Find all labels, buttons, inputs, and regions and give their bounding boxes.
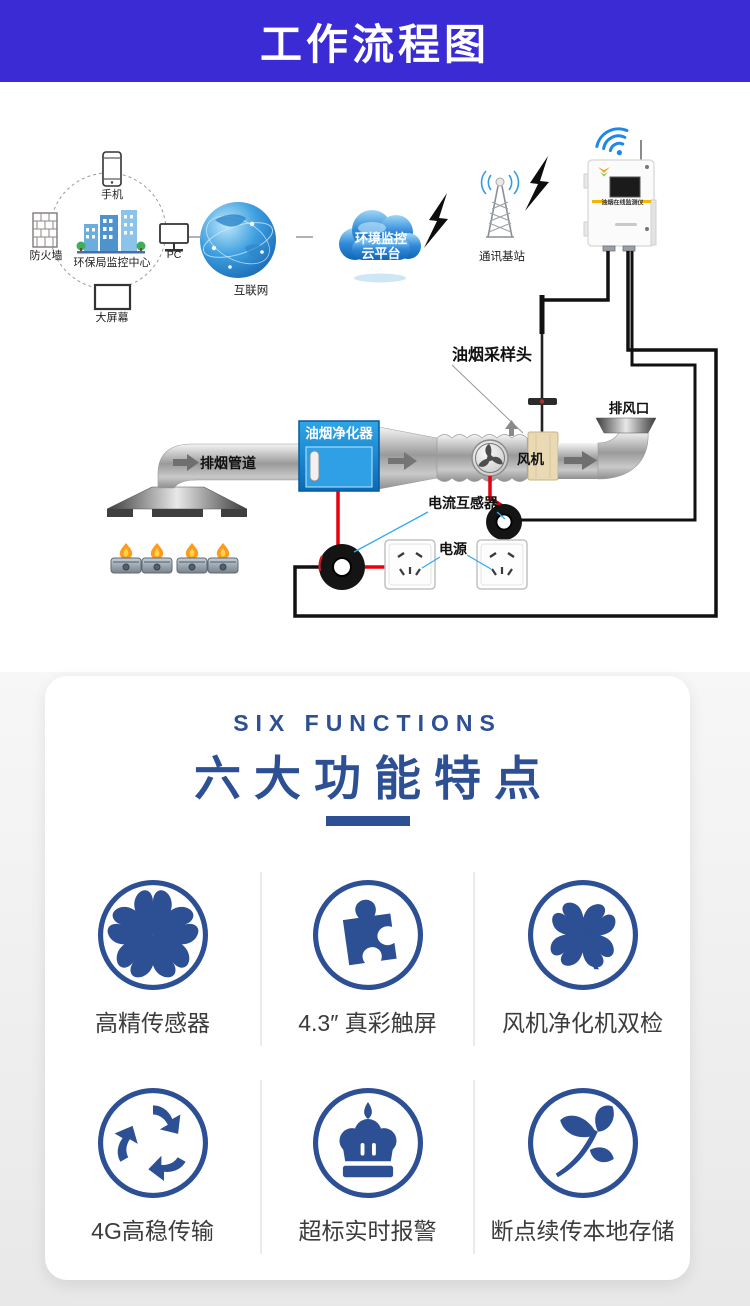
lightning-icon <box>424 193 448 248</box>
device-name-label: 油烟在线监测仪 <box>601 199 644 207</box>
flower-icon <box>96 878 210 992</box>
puzzle-icon <box>311 878 425 992</box>
feature-label: 4.3″ 真彩触屏 <box>298 1004 437 1038</box>
feature-label: 风机净化机双检 <box>502 1004 663 1038</box>
crown-icon <box>311 1086 425 1200</box>
phone-icon <box>103 152 121 186</box>
current-transformer-label: 电流互感器 <box>428 495 499 511</box>
feature-item-touchscreen: 4.3″ 真彩触屏 <box>260 872 475 1046</box>
monitoring-network-group: 手机 防火墙 环保局监控中心 <box>30 152 189 324</box>
power-label: 电源 <box>439 541 467 557</box>
workflow-diagram-svg: 手机 防火墙 环保局监控中心 <box>0 82 750 672</box>
stove-icon <box>142 543 172 573</box>
monitor-device: 油烟在线监测仪 <box>584 123 656 251</box>
feature-item-4g: 4G高稳传输 <box>45 1080 260 1254</box>
epa-center-label: 环保局监控中心 <box>74 255 151 269</box>
wifi-icon <box>593 123 636 162</box>
phone-label: 手机 <box>101 187 123 201</box>
purifier-label: 油烟净化器 <box>305 425 373 441</box>
page-banner: 工作流程图 <box>0 0 750 82</box>
base-station-icon <box>482 171 519 237</box>
device-screen <box>610 177 640 197</box>
base-station-label: 通讯基站 <box>479 249 525 263</box>
purifier-box: 油烟净化器 <box>299 421 379 491</box>
cable-to-probe <box>542 251 608 300</box>
stove-icon <box>208 543 238 573</box>
big-screen-icon <box>95 285 130 309</box>
leaf-icon <box>526 1086 640 1200</box>
features-eyebrow: SIX FUNCTIONS <box>45 710 690 737</box>
feature-item-alarm: 超标实时报警 <box>260 1080 475 1254</box>
exhaust-pipe-label: 排烟管道 <box>200 455 256 471</box>
cloud-label-line2: 云平台 <box>361 246 400 261</box>
exhaust-duct <box>158 418 656 489</box>
epa-buildings-icon <box>77 210 146 254</box>
cloud-shadow <box>354 274 406 283</box>
feature-item-sensor: 高精传感器 <box>45 872 260 1046</box>
fan-icon <box>472 440 508 476</box>
outlet-elbow <box>598 431 648 479</box>
internet-globe-icon <box>199 202 278 278</box>
firewall-label: 防火墙 <box>30 248 63 262</box>
banner-title: 工作流程图 <box>260 11 490 72</box>
fan-label: 风机 <box>517 451 545 467</box>
features-section: SIX FUNCTIONS 六大功能特点 高精传感器 <box>0 672 750 1306</box>
recycle-icon <box>96 1086 210 1200</box>
stove-icon <box>111 543 141 573</box>
feature-label: 超标实时报警 <box>299 1212 437 1246</box>
exhaust-outlet-label: 排风口 <box>609 400 650 416</box>
sampling-head-label: 油烟采样头 <box>452 345 532 364</box>
current-transformer-icon <box>319 544 365 590</box>
stove-icon <box>177 543 207 573</box>
internet-label: 互联网 <box>234 283 269 297</box>
cloud-label-line1: 环境监控 <box>355 231 407 246</box>
kitchen-hood-icon <box>107 487 247 517</box>
feature-grid: 高精传感器 4.3″ 真彩触屏 <box>45 872 690 1254</box>
feature-label: 4G高稳传输 <box>91 1212 214 1246</box>
feature-label: 断点续传本地存储 <box>491 1212 675 1246</box>
title-underline-bar <box>326 816 410 826</box>
feature-card: SIX FUNCTIONS 六大功能特点 高精传感器 <box>45 676 690 1280</box>
up-arrow <box>505 420 518 436</box>
firewall-icon <box>33 213 57 247</box>
workflow-diagram: 手机 防火墙 环保局监控中心 <box>0 82 750 672</box>
big-screen-label: 大屏幕 <box>96 310 129 324</box>
pc-label: PC <box>167 249 182 261</box>
feature-label: 高精传感器 <box>95 1004 210 1038</box>
outlet-flange <box>596 418 656 433</box>
clover-icon <box>526 878 640 992</box>
feature-item-dual-check: 风机净化机双检 <box>475 872 690 1046</box>
features-title: 六大功能特点 <box>45 740 690 809</box>
pc-icon <box>160 224 188 252</box>
feature-item-storage: 断点续传本地存储 <box>475 1080 690 1254</box>
cloud-platform-icon: 环境监控 云平台 <box>339 210 421 283</box>
lightning-icon-2 <box>525 156 549 211</box>
